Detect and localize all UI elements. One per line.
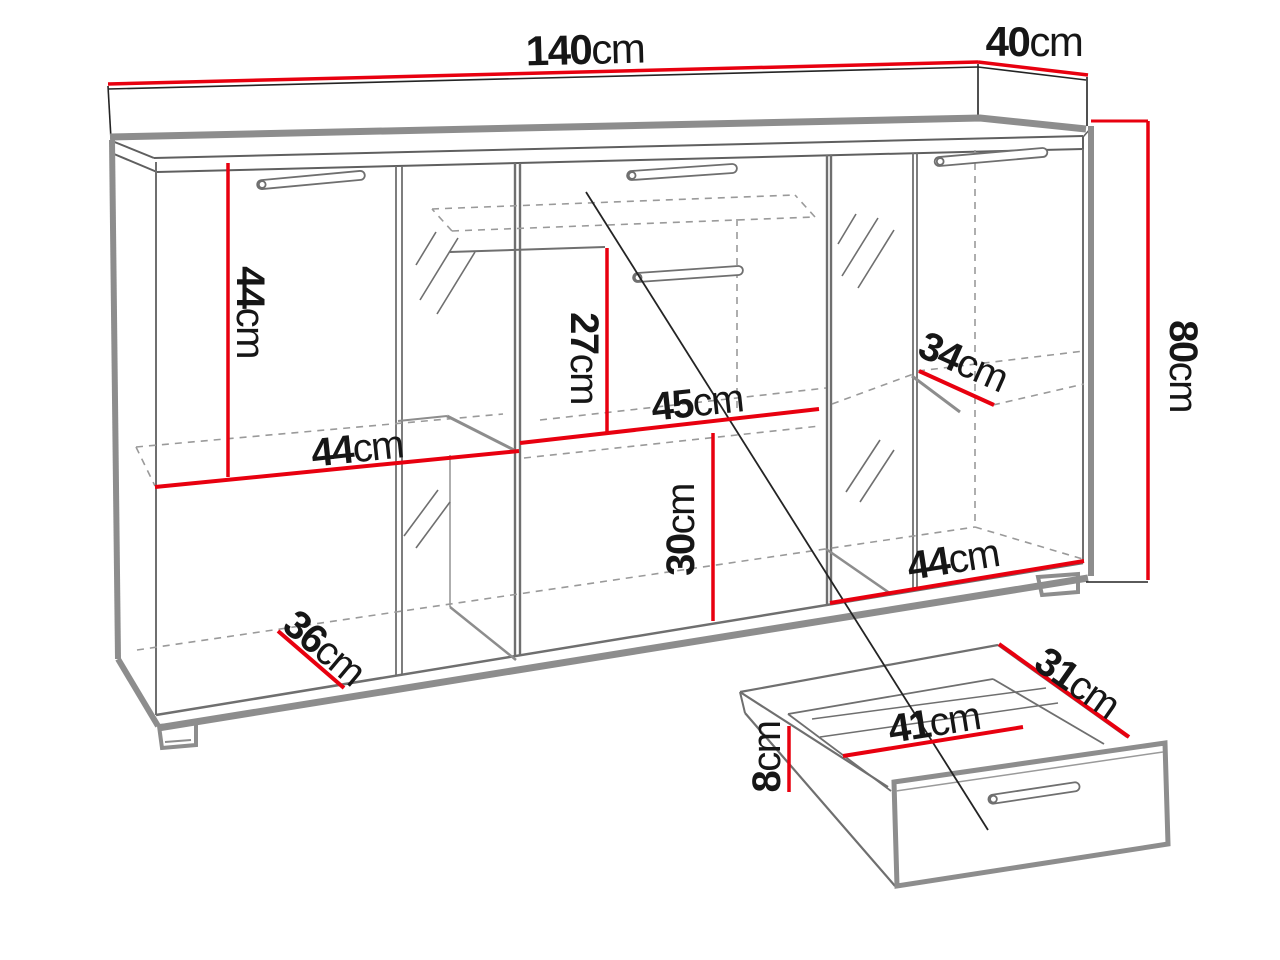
dim-height-label: 80cm xyxy=(1163,320,1203,412)
glass-hatching xyxy=(404,214,894,548)
drawer-front-panel xyxy=(894,743,1168,886)
dim-center-bottom-label: 30cm xyxy=(661,484,701,576)
dim-width-unit: cm xyxy=(591,24,645,72)
dim-left-width-label: 44cm xyxy=(309,424,405,473)
dim-center-shelf-label: 45cm xyxy=(649,378,745,427)
dim-drawer-height-label: 8cm xyxy=(747,721,787,792)
dim-depth-unit: cm xyxy=(1029,18,1082,65)
diagram-canvas: 140cm 40cm 80cm 44cm 44cm 27cm 45cm 30cm… xyxy=(0,0,1280,960)
middle-drawer-handle xyxy=(633,266,743,283)
dim-depth-value: 40 xyxy=(986,18,1030,65)
countertop-back-edge xyxy=(110,118,1086,137)
top-drawer-handle xyxy=(627,164,737,181)
dim-height-value: 80 xyxy=(1161,320,1205,362)
dim-width-label: 140cm xyxy=(525,27,645,72)
dim-depth-label: 40cm xyxy=(986,21,1083,63)
door-handles xyxy=(257,148,1048,283)
dimension-lines xyxy=(108,62,1148,792)
dim-left-height-label: 44cm xyxy=(230,266,270,358)
dim-height-unit: cm xyxy=(1161,362,1205,412)
left-door-handle xyxy=(257,171,365,190)
dim-width-value: 140 xyxy=(525,26,592,75)
dim-center-top-label: 27cm xyxy=(564,312,604,404)
sideboard-diagram xyxy=(0,0,1280,960)
